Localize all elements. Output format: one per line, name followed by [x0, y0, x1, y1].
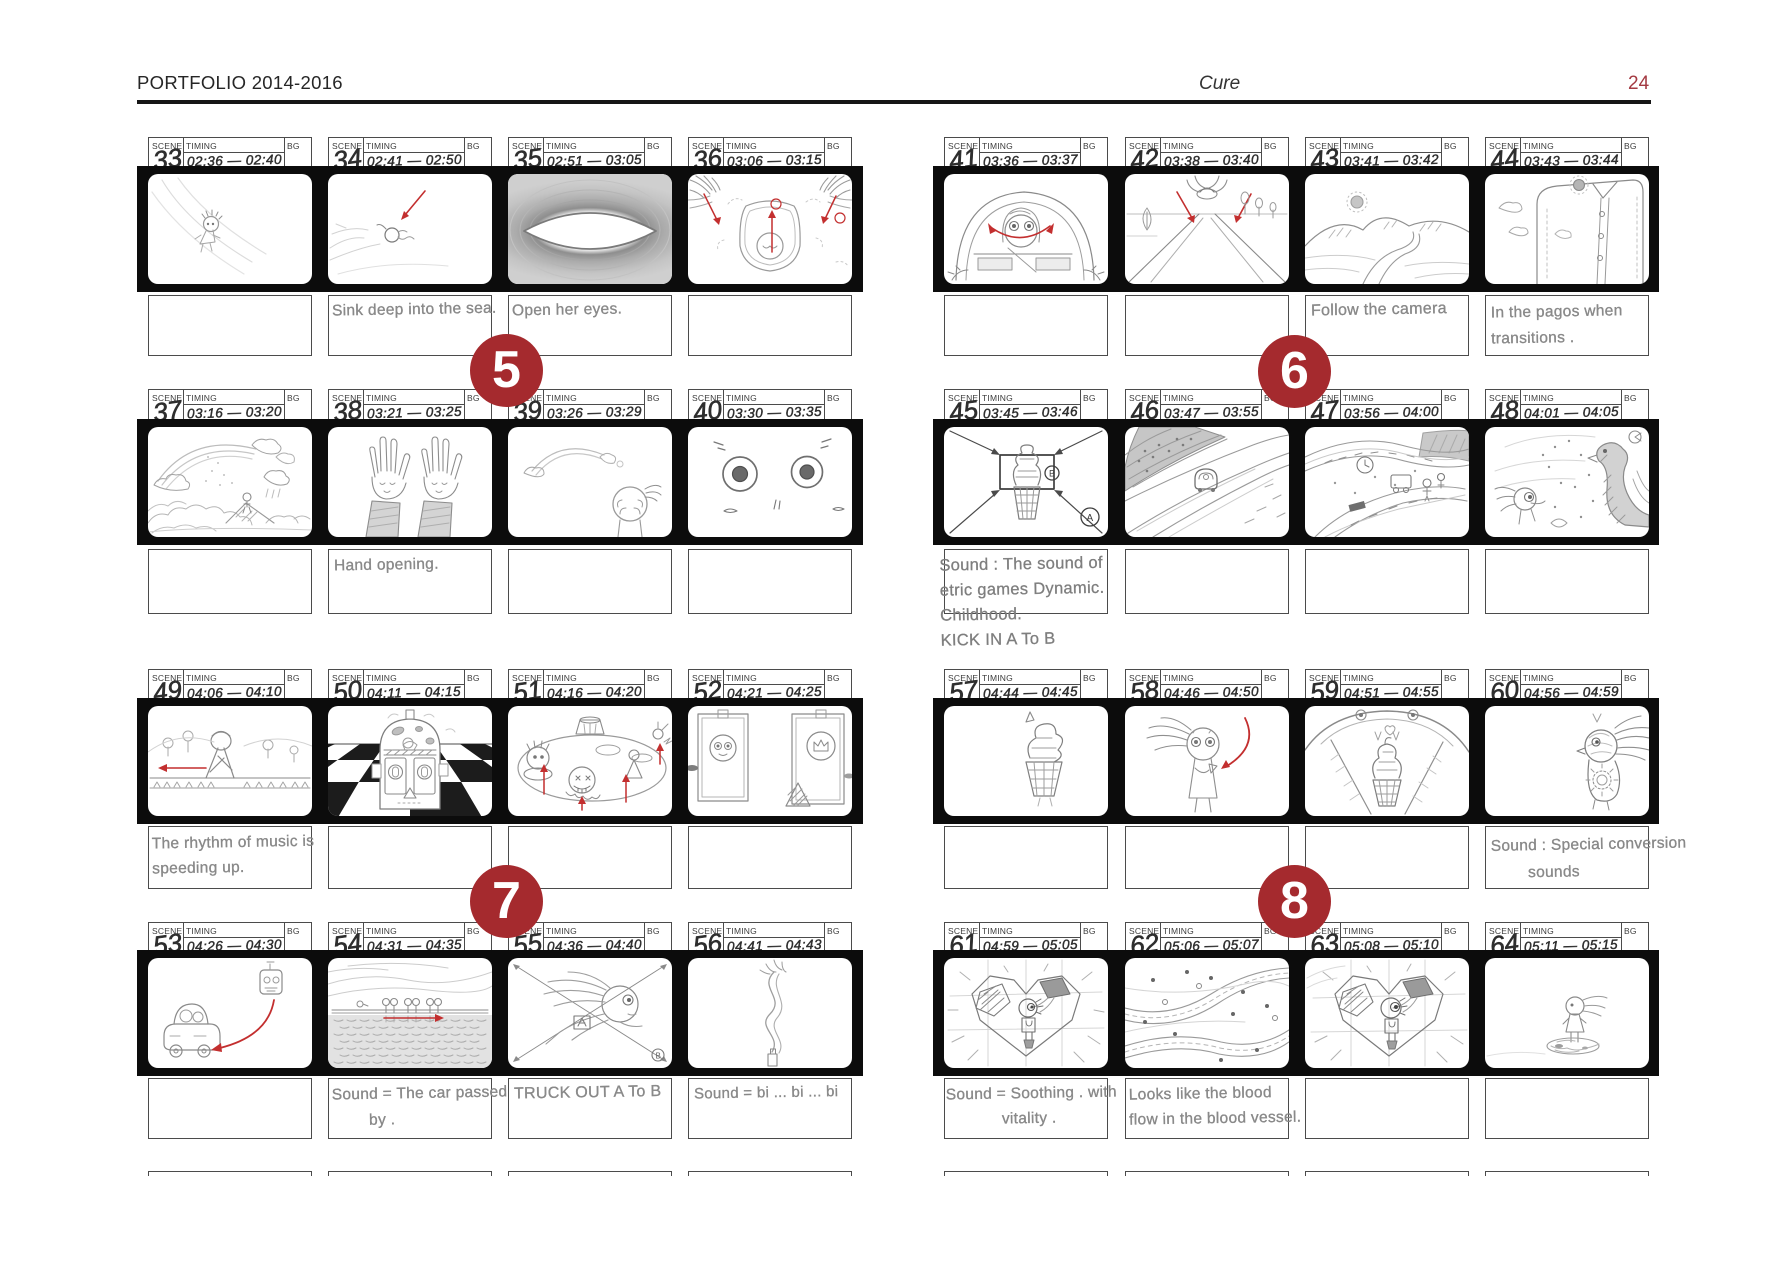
svg-text:B: B [656, 1052, 661, 1061]
svg-text:B: B [1049, 469, 1055, 479]
svg-text:A: A [1087, 513, 1094, 524]
